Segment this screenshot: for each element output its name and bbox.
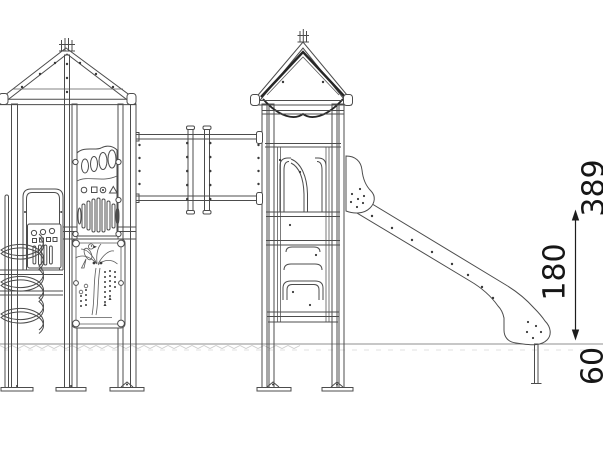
playground-elevation-drawing: 180 389 60 [0,0,603,453]
bridge [136,126,262,214]
bridge-bottom-rail [136,196,262,201]
internal-climber [279,158,326,306]
footings [1,382,353,391]
drawing-svg: 180 389 60 [0,0,603,453]
spiral-climber [1,234,43,334]
eave-cap [251,95,260,106]
bridge-mount-plate [257,132,263,144]
footing-plate [322,388,353,392]
eave-cap [344,95,353,106]
left-tower [0,38,136,388]
footing-plate [110,388,144,392]
bridge-top-rail [136,135,262,140]
footing-plate [257,388,291,392]
activity-panel [73,146,121,237]
ground [0,344,603,350]
dimension-annotations: 180 389 60 [538,159,603,385]
slide-body [352,196,550,345]
platform-height-dimension-label: 180 [538,243,573,300]
roof-finial [298,29,310,42]
left-tower-roof [0,38,136,105]
slide-entry-flange [346,156,374,213]
right-tower [251,29,353,388]
dimension-arrow-down [572,330,579,341]
parrot-panel [72,239,125,328]
eave-cap [0,94,8,105]
ground-hatch [0,346,300,349]
slide [346,156,550,384]
overall-height-dimension-label: 389 [577,159,603,216]
eave-cap [127,94,136,105]
bridge-mount-plate [257,193,263,205]
footing-plate [1,388,33,392]
foundation-depth-dimension-label: 60 [576,347,603,385]
footing-plate [56,388,86,392]
roof-rivets [21,62,114,93]
